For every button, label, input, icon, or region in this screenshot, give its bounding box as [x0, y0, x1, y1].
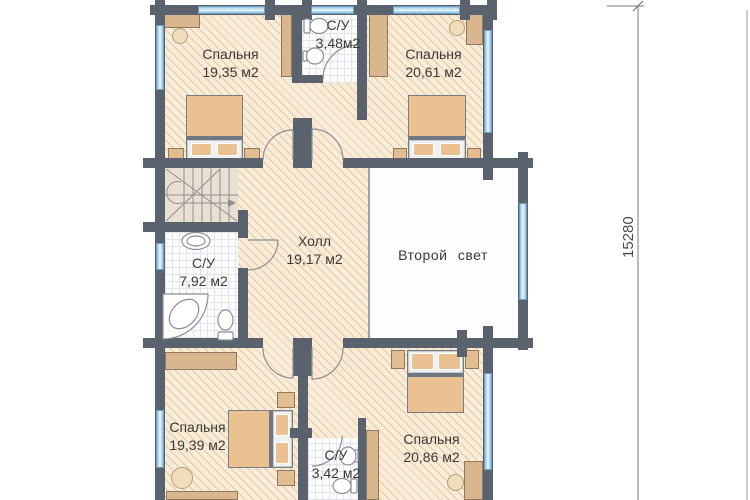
room-label-bedroom-top-left: Спальня 19,35 м2 [183, 45, 278, 81]
room-name: Спальня [183, 45, 278, 63]
plant-pot [172, 28, 188, 44]
wardrobe [166, 491, 238, 500]
room-area: 7,92 м2 [156, 272, 251, 290]
window [198, 6, 265, 14]
room-name: С/У [156, 254, 251, 272]
dimension-line: 15280 [607, 1, 747, 500]
wardrobe [165, 352, 237, 370]
room-name: С/У [303, 16, 373, 34]
room-area: 19,35 м2 [183, 63, 278, 81]
bed [407, 350, 464, 413]
room-area: 19,39 м2 [150, 436, 245, 454]
plant-pot [449, 20, 465, 36]
pillow [440, 143, 461, 156]
room-name: Холл [267, 232, 362, 250]
window [393, 6, 460, 14]
dimension-tick [633, 1, 643, 11]
room-label-bedroom-top-right: Спальня 20,61 м2 [386, 45, 481, 81]
room-label-bathroom-left: С/У 7,92 м2 [156, 254, 251, 290]
dimension-value: 15280 [620, 216, 637, 258]
pillow [411, 353, 434, 370]
room-name: С/У [290, 446, 382, 464]
wall-stub [460, 0, 470, 20]
window [484, 30, 492, 133]
bed-body [187, 96, 242, 136]
wall-stub [457, 330, 467, 357]
nightstand [391, 350, 405, 369]
room-name: Спальня [386, 45, 481, 63]
pillow [217, 143, 238, 156]
bed-body [409, 96, 465, 136]
wall-stub [487, 0, 497, 20]
floor-plan: 15280 Спальня 19,35 м2 С/У 3,48м2 Спальн… [0, 0, 750, 500]
window [311, 6, 354, 14]
wall [343, 338, 533, 348]
wardrobe [464, 461, 483, 500]
room-label-second-light: Второй свет [368, 246, 518, 264]
room-name: Спальня [384, 430, 479, 448]
window [156, 25, 164, 90]
wall-stub [265, 0, 275, 20]
room-name: Второй свет [368, 246, 518, 264]
room-area: 19,17 м2 [267, 250, 362, 268]
bed-body [408, 377, 463, 412]
plant-pot [447, 474, 464, 491]
nightstand [277, 392, 295, 408]
room-name: Спальня [150, 418, 245, 436]
room-label-bathroom-top: С/У 3,48м2 [303, 16, 373, 52]
room-area: 3,48м2 [303, 34, 373, 52]
staircase-floor [165, 168, 238, 222]
pillow [275, 442, 289, 464]
pillow [275, 414, 289, 436]
room-label-bedroom-bottom-right: Спальня 20,86 м2 [384, 430, 479, 466]
wall [293, 338, 312, 376]
room-area: 20,61 м2 [386, 63, 481, 81]
wall [238, 210, 248, 238]
wall [292, 5, 302, 83]
room-area: 20,86 м2 [384, 448, 479, 466]
room-area: 3,42 м2 [290, 464, 382, 482]
wall [343, 158, 533, 168]
window [519, 203, 527, 300]
room-label-bedroom-bottom-left: Спальня 19,39 м2 [150, 418, 245, 454]
wall [293, 118, 312, 168]
room-label-hall: Холл 19,17 м2 [267, 232, 362, 268]
nightstand [465, 350, 479, 369]
pillow [191, 143, 212, 156]
window [484, 373, 492, 470]
plant-pot [171, 467, 193, 489]
room-label-bathroom-bottom: С/У 3,42 м2 [290, 446, 382, 482]
wardrobe [281, 10, 292, 77]
pillow [413, 143, 434, 156]
